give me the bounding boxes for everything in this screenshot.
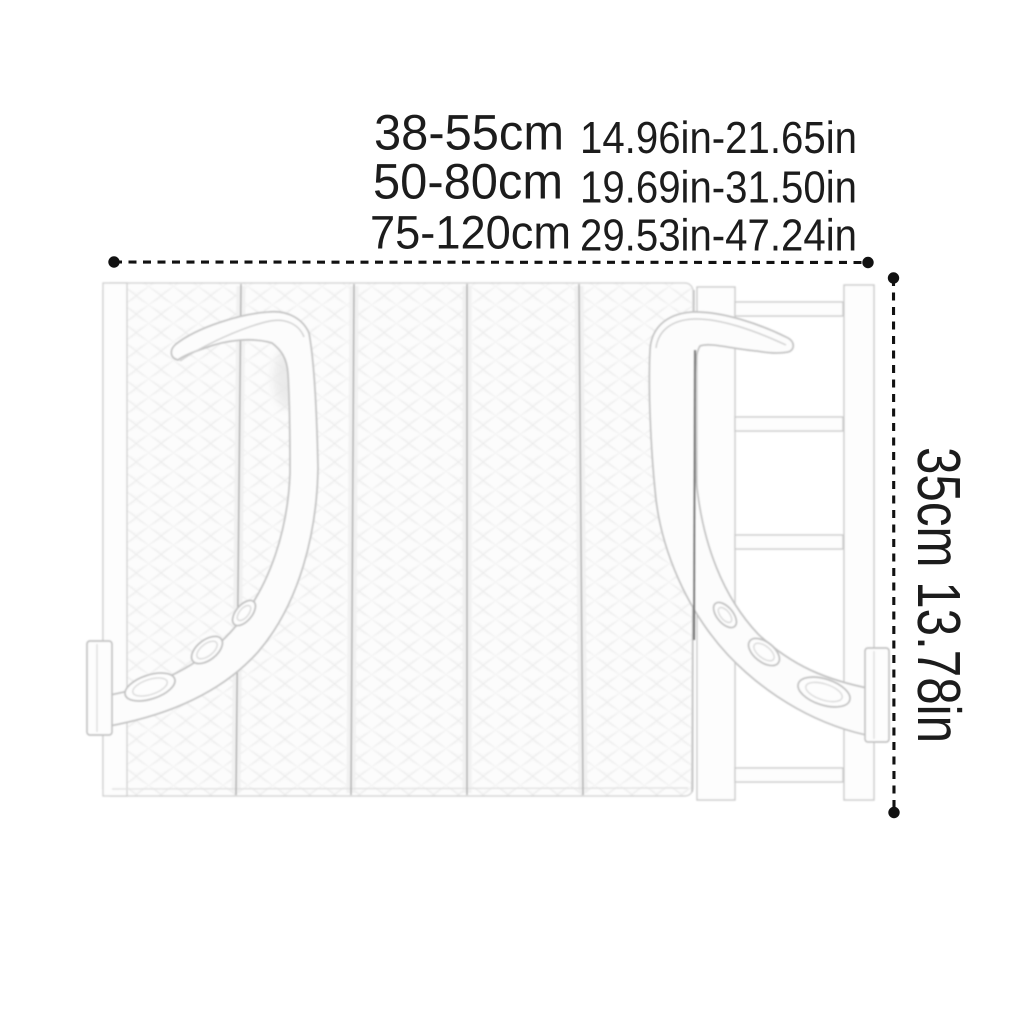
svg-text:35cm 13.78in: 35cm 13.78in: [905, 447, 973, 743]
svg-text:38-55cm: 38-55cm: [374, 105, 564, 161]
svg-text:75-120cm: 75-120cm: [370, 206, 571, 259]
svg-text:19.69in-31.50in: 19.69in-31.50in: [580, 162, 857, 213]
svg-text:14.96in-21.65in: 14.96in-21.65in: [580, 112, 857, 163]
svg-text:50-80cm: 50-80cm: [373, 154, 563, 210]
svg-text:29.53in-47.24in: 29.53in-47.24in: [580, 210, 857, 261]
